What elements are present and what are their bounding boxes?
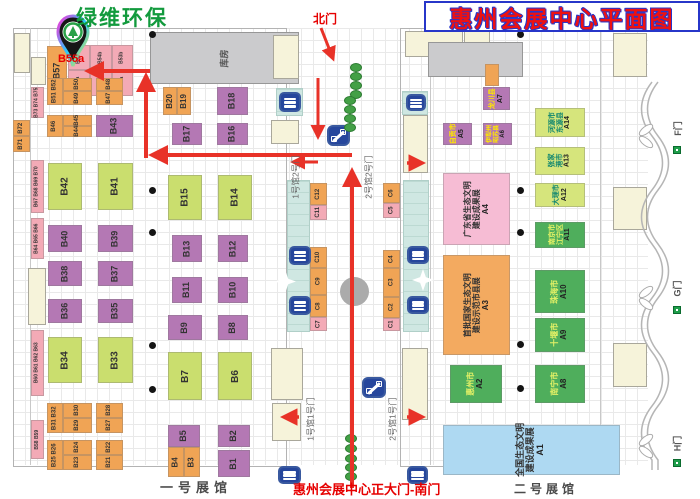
fountain-circle xyxy=(340,277,369,306)
hall1-gate1-label: 1号馆1号门 xyxy=(300,390,322,448)
booth-C4: C4 xyxy=(383,250,400,268)
booth-label: B24 xyxy=(74,442,81,453)
cream-structure xyxy=(613,187,647,230)
booth-B2: B2 xyxy=(218,425,250,447)
booth-A3: 首批国家生态文明建设示范市县展A3 xyxy=(443,255,510,355)
booth-C7: C7 xyxy=(310,317,327,331)
brand-name: 绿维环保 xyxy=(76,2,168,32)
booth-label: 大理市A12 xyxy=(552,185,567,206)
hall2-gate1-label: 2号馆1号门 xyxy=(382,390,404,448)
pillar-dot xyxy=(149,187,156,194)
booth-label: B35 xyxy=(111,303,121,320)
booth-B39: B39 xyxy=(98,225,133,252)
booth-A5: 自贡市A5 xyxy=(443,123,472,145)
elevator-icon xyxy=(407,296,429,314)
booth-label: B23 xyxy=(74,457,81,468)
elevator-icon xyxy=(289,296,311,315)
booth-B8: B8 xyxy=(218,315,248,340)
booth-label: B5 xyxy=(179,430,189,442)
booth-label: B11 xyxy=(182,282,192,298)
booth-label: B54b xyxy=(98,51,104,63)
booth-label: B71 xyxy=(18,138,25,149)
booth-label: C1 xyxy=(388,321,395,329)
booth-label: B17 xyxy=(182,126,192,143)
booth-B27: B27 xyxy=(96,418,123,433)
booth-label: B6 xyxy=(229,370,240,383)
booth-A12: 大理市A12 xyxy=(535,183,585,207)
booth-label: B51 B52 xyxy=(52,80,59,104)
booth-label: 广东省生态文明建设成果展A4 xyxy=(463,181,489,237)
booth-label: C9 xyxy=(315,278,322,286)
booth-label: B27 xyxy=(106,420,113,431)
booth-label: C5 xyxy=(388,207,395,215)
pillar-dot xyxy=(149,342,156,349)
booth-B36: B36 xyxy=(48,299,82,323)
booth-label: B38 xyxy=(60,265,70,282)
booth-label: 河源市东源县A14 xyxy=(548,112,571,133)
booth-B41: B41 xyxy=(98,163,133,210)
booth-B24: B24 xyxy=(63,440,92,455)
booth-unlabeled xyxy=(485,64,499,86)
booth-label: B33 xyxy=(110,351,121,369)
booth-label: B29 xyxy=(74,420,81,431)
cream-structure xyxy=(613,33,647,77)
cream-structure xyxy=(272,403,301,441)
gate-g-label: G门 xyxy=(668,272,686,304)
booth-label: B72 xyxy=(18,122,25,133)
cream-structure xyxy=(271,120,299,144)
booth-B47: B47 xyxy=(96,91,123,105)
cream-structure xyxy=(271,348,303,400)
booth-C8: C8 xyxy=(310,295,327,317)
booth-label: 自贡市A5 xyxy=(450,124,465,145)
booth-label: B67 B68 B69 B70 xyxy=(35,166,41,207)
booth-B53b: B53b xyxy=(112,45,133,70)
pillar-dot xyxy=(149,31,156,38)
hall1-gate2-label: 1号馆2号门 xyxy=(285,148,307,206)
booth-B7: B7 xyxy=(168,352,202,400)
booth-B54b: B54b xyxy=(90,45,112,70)
booth-B28: B28 xyxy=(96,403,123,418)
booth-label: B44 xyxy=(74,126,81,137)
booth-label: 伊犁州昭苏县A6 xyxy=(488,125,508,143)
tree-icon xyxy=(345,444,357,453)
booth-B35: B35 xyxy=(98,299,133,323)
booth-B34: B34 xyxy=(48,337,82,383)
booth-label: B9 xyxy=(180,322,190,334)
elevator-icon xyxy=(279,92,301,112)
booth-A7: 龙川县A7 xyxy=(483,87,510,110)
booth-label: C3 xyxy=(388,279,395,287)
cream-structure xyxy=(31,57,46,85)
gate-f-label: F门 xyxy=(668,112,686,144)
booth-C10: C10 xyxy=(310,247,327,268)
booth-label: B41 xyxy=(110,177,121,195)
booth-label: B40 xyxy=(60,230,70,247)
booth-A10: 珠海市A10 xyxy=(535,270,585,313)
booth-label: C12 xyxy=(315,188,322,199)
booth-B51-B52: B51 B52 xyxy=(47,78,63,105)
pillar-dot xyxy=(517,229,524,236)
elevator-icon xyxy=(289,246,311,265)
booth-C6: C6 xyxy=(383,183,400,203)
booth-B23: B23 xyxy=(63,455,92,470)
pillar-dot xyxy=(517,385,524,392)
booth-A4: 广东省生态文明建设成果展A4 xyxy=(443,173,510,245)
tree-icon xyxy=(345,454,357,463)
booth-C1: C1 xyxy=(383,318,400,331)
tree-icon xyxy=(350,72,362,81)
booth-B58-B59: B58 B59 xyxy=(31,420,44,459)
booth-B64-B65-B66: B64 B65 B66 xyxy=(31,218,44,259)
booth-label: B50 xyxy=(74,79,81,90)
tree-icon xyxy=(345,434,357,443)
booth-label: B20 xyxy=(166,94,175,109)
booth-B21: B21 xyxy=(96,455,123,470)
booth-C11: C11 xyxy=(310,205,327,220)
booth-C2: C2 xyxy=(383,297,400,318)
booth-B46: B46 xyxy=(47,115,63,137)
cream-structure xyxy=(613,343,647,387)
pillar-dot xyxy=(517,187,524,194)
booth-label: B4 xyxy=(172,457,181,467)
tree-icon xyxy=(350,63,362,72)
booth-label: B30 xyxy=(74,405,81,416)
booth-label: C6 xyxy=(388,189,395,197)
booth-B14: B14 xyxy=(218,175,252,220)
booth-label: B43 xyxy=(110,118,120,135)
booth-label: 首批国家生态文明建设示范市县展A3 xyxy=(463,273,489,337)
gray-structure xyxy=(428,42,523,77)
booth-label: B8 xyxy=(228,322,238,334)
booth-label: B60 B61 B62 B63 xyxy=(35,343,41,384)
tree-icon xyxy=(344,114,356,123)
booth-label: B31 B32 xyxy=(52,406,59,430)
booth-B44: B44 xyxy=(63,126,92,137)
booth-B9: B9 xyxy=(168,315,202,340)
south-gate-label: 惠州会展中心正大门-南门 xyxy=(293,479,440,498)
booth-label: B10 xyxy=(228,282,238,299)
booth-label: B3 xyxy=(188,457,197,467)
booth-label: B22 xyxy=(106,442,113,453)
booth-A6: 伊犁州昭苏县A6 xyxy=(483,123,512,145)
storage-label: 库房 xyxy=(218,49,231,67)
booth-B60-B61-B62-B63: B60 B61 B62 B63 xyxy=(31,330,44,396)
booth-A14: 河源市东源县A14 xyxy=(535,108,585,137)
booth-label: B19 xyxy=(180,94,189,109)
gate-h-label: H门 xyxy=(668,428,686,458)
booth-label: B46 xyxy=(52,120,59,131)
booth-B50: B50 xyxy=(63,78,92,91)
booth-label: B73 B74 B75 xyxy=(35,87,41,117)
tree-icon xyxy=(350,81,362,90)
gate-f-exit-icon xyxy=(673,146,681,154)
booth-label: B42 xyxy=(59,177,70,195)
booth-B42: B42 xyxy=(48,163,82,210)
booth-B45: B45 xyxy=(63,115,92,126)
booth-A2: 惠州市A2 xyxy=(450,365,502,403)
booth-B19: B19 xyxy=(177,87,191,115)
booth-B38: B38 xyxy=(48,261,82,286)
booth-B13: B13 xyxy=(172,235,202,262)
booth-B5: B5 xyxy=(168,425,200,447)
booth-label: B36 xyxy=(60,303,70,320)
hall2-inner-wall xyxy=(430,28,431,465)
elevator-icon xyxy=(406,94,426,111)
booth-label: B45 xyxy=(74,115,81,126)
booth-label: B53b xyxy=(120,51,126,63)
hall2-gate2-label: 2号馆2号门 xyxy=(358,148,380,206)
booth-B67-B68-B69-B70: B67 B68 B69 B70 xyxy=(31,160,44,213)
booth-label: C7 xyxy=(315,320,322,328)
booth-A8: 南宁市A8 xyxy=(535,365,585,403)
booth-B49: B49 xyxy=(63,91,92,105)
booth-A9: 十堰市A9 xyxy=(535,318,585,352)
cream-structure xyxy=(402,348,428,420)
booth-label: B7 xyxy=(179,370,190,383)
hall2-right-wall xyxy=(600,28,601,465)
booth-label: B34 xyxy=(59,351,70,369)
booth-B48: B48 xyxy=(96,78,123,91)
booth-C9: C9 xyxy=(310,268,327,295)
tree-icon xyxy=(344,96,356,105)
pillar-dot xyxy=(149,386,156,393)
booth-label: C2 xyxy=(388,304,395,312)
gate-g-exit-icon xyxy=(673,306,681,314)
booth-label: 南宁市A8 xyxy=(551,372,569,396)
cream-structure xyxy=(14,33,30,73)
booth-B3: B3 xyxy=(184,447,200,477)
booth-label: B12 xyxy=(228,240,238,257)
booth-A11: 南京市江宁区A11 xyxy=(535,222,585,248)
booth-A1: 全国生态文明建设成果展A1 xyxy=(443,425,620,475)
booth-label: B2 xyxy=(229,430,239,442)
booth-label: B48 xyxy=(106,79,113,90)
booth-label: B16 xyxy=(228,126,238,143)
booth-C5: C5 xyxy=(383,203,400,218)
booth-B30: B30 xyxy=(63,403,92,418)
booth-B1: B1 xyxy=(218,450,250,477)
booth-C12: C12 xyxy=(310,183,327,205)
booth-B71: B71 xyxy=(13,136,30,152)
floor-plan-map: 库房 B73 B74 B75B67 B68 B69 B70B64 B65 B66… xyxy=(0,0,700,499)
booth-B22: B22 xyxy=(96,440,123,455)
booth-label: 惠州市A2 xyxy=(467,372,485,396)
booth-B40: B40 xyxy=(48,225,82,252)
booth-label: B15 xyxy=(179,188,190,206)
booth-label: B37 xyxy=(111,265,121,282)
pin-booth-label: B55a xyxy=(58,53,84,65)
booth-label: C11 xyxy=(315,207,322,218)
gate-h-exit-icon xyxy=(673,459,681,467)
page-title: 惠州会展中心平面图 xyxy=(424,1,700,32)
booth-B16: B16 xyxy=(217,123,248,145)
booth-B72: B72 xyxy=(13,120,30,136)
booth-label: B47 xyxy=(106,92,113,103)
pillar-dot xyxy=(517,341,524,348)
booth-label: B18 xyxy=(228,93,238,110)
booth-label: B49 xyxy=(74,92,81,103)
north-gate-label: 北门 xyxy=(313,10,337,27)
tree-icon xyxy=(344,105,356,114)
booth-B15: B15 xyxy=(168,175,202,220)
booth-B18: B18 xyxy=(217,87,248,115)
booth-B20: B20 xyxy=(163,87,177,115)
booth-label: 张家港市A13 xyxy=(548,154,571,168)
booth-label: 珠海市A10 xyxy=(551,280,569,304)
booth-label: 龙川县A7 xyxy=(489,88,504,109)
booth-B25-B26: B25 B26 xyxy=(47,440,63,470)
booth-label: B21 xyxy=(106,457,113,468)
booth-B37: B37 xyxy=(98,261,133,286)
booth-label: C10 xyxy=(315,252,322,263)
hall2-label: 二号展馆 xyxy=(514,480,578,497)
booth-B43: B43 xyxy=(96,115,133,137)
booth-label: B39 xyxy=(111,230,121,247)
elevator-icon xyxy=(407,246,429,264)
booth-label: 全国生态文明建设成果展A1 xyxy=(517,423,547,477)
booth-label: B13 xyxy=(182,240,192,257)
cream-structure xyxy=(403,115,428,173)
cream-structure xyxy=(273,35,299,79)
booth-B31-B32: B31 B32 xyxy=(47,403,63,433)
tree-icon xyxy=(345,463,357,472)
tree-icon xyxy=(344,123,356,132)
booth-label: C8 xyxy=(315,302,322,310)
booth-B6: B6 xyxy=(218,352,252,400)
booth-label: B1 xyxy=(229,458,239,470)
booth-label: B14 xyxy=(229,188,240,206)
booth-B4: B4 xyxy=(168,447,184,477)
booth-label: B64 B65 B66 xyxy=(35,223,41,253)
cream-structure xyxy=(28,268,46,325)
booth-label: 十堰市A9 xyxy=(551,323,569,347)
booth-label: B25 B26 xyxy=(52,443,59,467)
booth-B33: B33 xyxy=(98,337,133,383)
booth-label: B58 B59 xyxy=(35,430,41,450)
booth-label: C4 xyxy=(388,255,395,263)
booth-B10: B10 xyxy=(218,277,248,303)
booth-B73-B74-B75: B73 B74 B75 xyxy=(31,87,44,118)
pillar-dot xyxy=(149,229,156,236)
booth-B12: B12 xyxy=(218,235,248,262)
booth-label: 南京市江宁区A11 xyxy=(548,225,571,246)
booth-B11: B11 xyxy=(172,277,202,303)
booth-B29: B29 xyxy=(63,418,92,433)
booth-C3: C3 xyxy=(383,268,400,297)
booth-B17: B17 xyxy=(172,123,202,145)
booth-label: B28 xyxy=(106,405,113,416)
hall1-label: 一号展馆 xyxy=(160,477,232,496)
booth-A13: 张家港市A13 xyxy=(535,147,585,175)
